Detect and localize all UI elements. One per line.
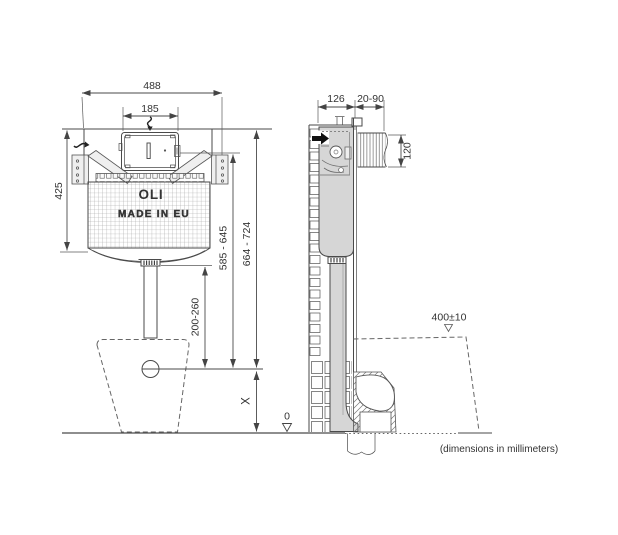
inlet-valve-circle	[330, 146, 342, 158]
dim-664-724-label: 664 - 724	[241, 222, 253, 267]
dim-outlet-axis-height: X	[241, 372, 257, 432]
units-note: (dimensions in millimeters)	[440, 444, 558, 455]
dim-x-label: X	[241, 397, 253, 405]
access-panel	[119, 133, 180, 171]
cistern-tank-front: OLI MADE IN EU	[88, 182, 210, 263]
dim-585-645-label: 585 - 645	[218, 226, 230, 271]
below-floor-pipe	[348, 434, 376, 455]
floor-line	[62, 433, 492, 434]
front-view: 488 185	[53, 80, 292, 432]
dim-panel-center-height: 585 - 645	[218, 155, 234, 368]
dim-425-label: 425	[53, 182, 65, 200]
floor-datum: 0	[283, 411, 292, 432]
drain-assembly	[348, 372, 397, 455]
datum-triangle	[283, 424, 292, 432]
left-wall-bracket	[72, 155, 89, 184]
dim-126-label: 126	[327, 93, 345, 105]
rim-datum-triangle	[445, 325, 453, 332]
flush-pipe-front	[139, 260, 162, 339]
dim-bowl-rim-height: 400±10	[432, 312, 467, 332]
water-inlet-icon-left	[74, 142, 90, 148]
dim-488-label: 488	[143, 80, 161, 92]
dim-outlet-range: 200-260	[190, 267, 206, 368]
technical-drawing-page: 488 185	[0, 0, 618, 535]
right-wall-bracket	[212, 155, 229, 184]
panel-pin	[164, 149, 166, 151]
dim-400-label: 400±10	[432, 312, 467, 324]
oli-logo: OLI	[139, 187, 164, 202]
wall-section-hatch	[358, 132, 395, 169]
made-in-eu-label: MADE IN EU	[118, 209, 190, 220]
datum-zero-label: 0	[284, 411, 290, 423]
wc-bowl-front-outline	[97, 340, 189, 433]
dim-frame-height: 425	[53, 131, 88, 253]
frame-top-rail	[96, 174, 204, 183]
dim-20-90-label: 20-90	[357, 93, 384, 105]
side-view: 126 20-90	[309, 93, 479, 455]
flush-actuator-slot	[147, 143, 150, 159]
dim-top-height: 664 - 724	[241, 131, 257, 368]
dim-185-label: 185	[141, 103, 159, 115]
outlet-box	[360, 412, 391, 432]
dim-200-260-label: 200-260	[190, 298, 202, 337]
dim-120-label: 120	[402, 142, 414, 160]
cistern-installation-drawing: 488 185	[0, 0, 618, 535]
dim-depth: 126	[318, 93, 355, 130]
